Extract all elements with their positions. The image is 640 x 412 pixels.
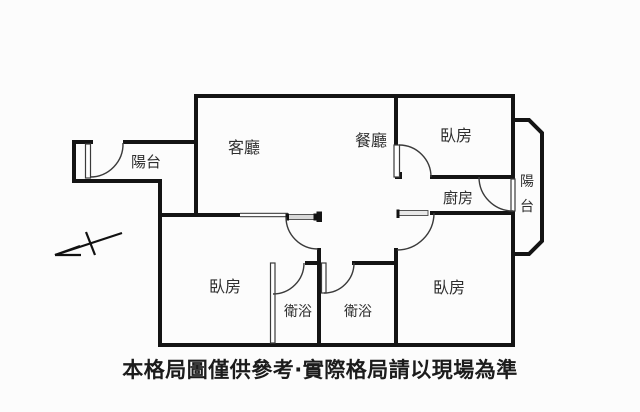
room-label-balcony-right-char1: 陽 (520, 174, 534, 190)
door-arc-balcony-left (90, 143, 123, 177)
door-panel-balcony-left (86, 144, 91, 178)
door-arc-bedroom-right (397, 213, 434, 250)
room-label-bedroom-left: 臥房 (209, 277, 241, 296)
door-arc-bath-right (324, 263, 354, 293)
door-panel-bath-left-wall (271, 263, 276, 343)
room-label-dining: 餐廳 (355, 131, 387, 150)
door-hinge-bedroom-right (397, 210, 400, 219)
disclaimer-text: 本格局圖僅供參考·實際格局請以現場為準 (122, 358, 517, 382)
room-label-bedroom-top: 臥房 (440, 126, 472, 145)
door-panel-bedroom-right (398, 211, 428, 216)
room-label-balcony-left: 陽台 (131, 153, 161, 171)
room-label-living: 客廳 (228, 138, 260, 157)
door-arc-bath-left (273, 263, 304, 294)
room-label-kitchen: 廚房 (443, 189, 473, 207)
door-panel-bedroom-top (394, 145, 400, 177)
floorplan-image: 陽台 客廳 餐廳 臥房 廚房 陽 台 臥房 衛浴 衛浴 臥房 本格局圖僅供參考·… (0, 0, 640, 412)
floorplan-svg: 陽台 客廳 餐廳 臥房 廚房 陽 台 臥房 衛浴 衛浴 臥房 本格局圖僅供參考·… (0, 0, 640, 412)
door-panel-hall (287, 215, 317, 220)
door-panel-kitchen-balcony (511, 179, 515, 211)
room-label-balcony-right-char2: 台 (520, 199, 534, 215)
door-arc-bedroom-top (399, 145, 431, 177)
north-arrow-icon (55, 232, 122, 255)
room-label-bath-left: 衛浴 (284, 304, 312, 320)
door-panel-bath-right (322, 263, 327, 293)
door-arc-kitchen-balcony (479, 177, 513, 211)
room-label-bath-right: 衛浴 (344, 304, 372, 320)
door-arc-hall (286, 217, 318, 249)
door-panel-hall-cap-right (314, 214, 318, 221)
room-label-bedroom-right: 臥房 (433, 278, 465, 297)
